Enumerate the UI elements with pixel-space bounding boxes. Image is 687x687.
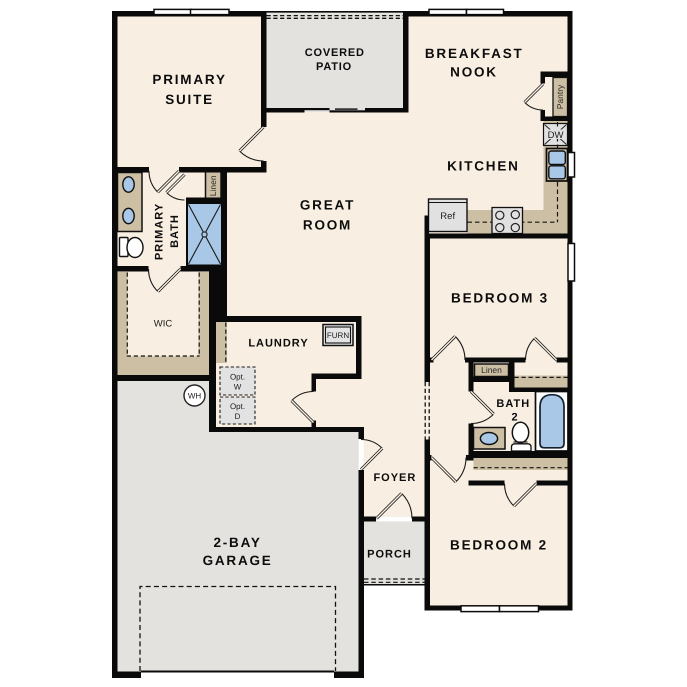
svg-text:COVERED: COVERED — [305, 47, 365, 59]
svg-text:Linen: Linen — [208, 175, 218, 196]
svg-text:SUITE: SUITE — [165, 92, 214, 107]
svg-text:Pantry: Pantry — [555, 84, 565, 109]
svg-text:2-BAY: 2-BAY — [213, 535, 261, 550]
svg-text:KITCHEN: KITCHEN — [447, 159, 520, 174]
svg-text:PRIMARY: PRIMARY — [152, 72, 226, 87]
svg-text:D: D — [235, 412, 241, 421]
svg-text:PORCH: PORCH — [367, 548, 412, 560]
svg-text:ROOM: ROOM — [303, 218, 352, 233]
svg-text:W: W — [234, 382, 242, 391]
svg-text:DW: DW — [548, 130, 564, 141]
svg-text:FOYER: FOYER — [373, 472, 416, 484]
svg-text:NOOK: NOOK — [450, 64, 498, 79]
svg-text:Opt.: Opt. — [230, 372, 245, 381]
svg-text:PRIMARY: PRIMARY — [154, 203, 166, 260]
svg-text:GREAT: GREAT — [300, 198, 355, 213]
svg-text:GARAGE: GARAGE — [203, 553, 273, 568]
svg-text:BATH: BATH — [496, 398, 530, 410]
svg-text:FURN: FURN — [327, 331, 349, 340]
svg-text:BEDROOM 2: BEDROOM 2 — [450, 538, 548, 553]
svg-text:2: 2 — [511, 412, 518, 424]
svg-text:WH: WH — [188, 391, 202, 400]
svg-text:BEDROOM 3: BEDROOM 3 — [451, 291, 549, 306]
svg-text:PATIO: PATIO — [316, 61, 352, 73]
svg-text:WIC: WIC — [154, 319, 173, 330]
svg-text:Opt.: Opt. — [230, 402, 245, 411]
svg-text:Ref: Ref — [440, 211, 455, 222]
svg-text:BREAKFAST: BREAKFAST — [425, 46, 524, 61]
svg-text:LAUNDRY: LAUNDRY — [248, 338, 308, 350]
svg-text:BATH: BATH — [169, 214, 181, 248]
svg-text:Linen: Linen — [481, 365, 502, 375]
